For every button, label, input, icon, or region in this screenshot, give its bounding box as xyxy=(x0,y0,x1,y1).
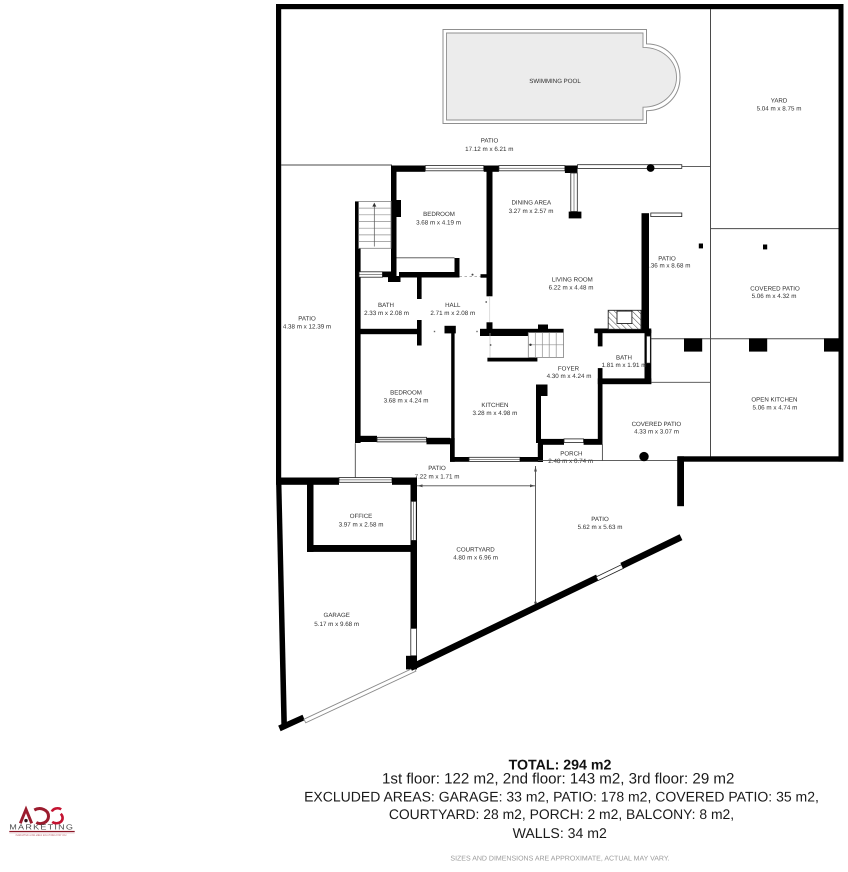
svg-text:WALLS: 34 m2: WALLS: 34 m2 xyxy=(513,825,607,841)
svg-text:FOYER: FOYER xyxy=(558,365,580,372)
svg-text:PORCH: PORCH xyxy=(560,450,582,457)
svg-text:COVERED PATIO: COVERED PATIO xyxy=(632,421,682,428)
svg-text:5.06 m x 4.74 m: 5.06 m x 4.74 m xyxy=(752,405,797,412)
svg-text:SIZES AND DIMENSIONS ARE APPRO: SIZES AND DIMENSIONS ARE APPROXIMATE, AC… xyxy=(450,855,669,862)
svg-text:COVERED PATIO: COVERED PATIO xyxy=(750,285,800,292)
svg-text:2.71 m x 2.08 m: 2.71 m x 2.08 m xyxy=(430,310,475,317)
svg-text:5.17 m x 9.68 m: 5.17 m x 9.68 m xyxy=(314,621,359,628)
svg-text:4.80 m x 6.96 m: 4.80 m x 6.96 m xyxy=(453,555,498,562)
svg-text:PATIO: PATIO xyxy=(298,316,316,323)
svg-text:BEDROOM: BEDROOM xyxy=(390,389,422,396)
svg-text:HALL: HALL xyxy=(445,302,461,309)
svg-text:OFFICE: OFFICE xyxy=(350,513,373,520)
svg-text:17.12 m x 6.21 m: 17.12 m x 6.21 m xyxy=(465,146,513,153)
svg-text:COURTYARD: 28 m2, PORCH: 2 m2,: COURTYARD: 28 m2, PORCH: 2 m2, BALCONY: … xyxy=(389,806,734,822)
svg-text:5.06 m x 4.32 m: 5.06 m x 4.32 m xyxy=(752,293,797,300)
svg-text:3.68 m x 4.19 m: 3.68 m x 4.19 m xyxy=(416,220,461,227)
svg-text:PATIO: PATIO xyxy=(481,138,499,145)
svg-text:EXCLUDED AREAS: GARAGE: 33 m2,: EXCLUDED AREAS: GARAGE: 33 m2, PATIO: 17… xyxy=(304,789,819,805)
svg-text:BEDROOM: BEDROOM xyxy=(423,211,455,218)
svg-text:4.38 m x 12.39 m: 4.38 m x 12.39 m xyxy=(283,324,331,331)
svg-text:LIVING ROOM: LIVING ROOM xyxy=(552,276,593,283)
svg-text:1.81 m x 1.91 m: 1.81 m x 1.91 m xyxy=(602,362,647,369)
svg-text:GARAGE: GARAGE xyxy=(324,612,350,619)
svg-text:4.30 m x 4.24 m: 4.30 m x 4.24 m xyxy=(547,373,592,380)
svg-text:KITCHEN: KITCHEN xyxy=(481,402,508,409)
svg-text:COURTYARD: COURTYARD xyxy=(456,546,495,553)
svg-text:6.22 m x 4.48 m: 6.22 m x 4.48 m xyxy=(549,284,594,291)
svg-text:PATIO: PATIO xyxy=(428,465,446,472)
svg-text:2.33 m x 2.08 m: 2.33 m x 2.08 m xyxy=(364,310,409,317)
svg-text:5.62 m x 5.63 m: 5.62 m x 5.63 m xyxy=(578,524,623,531)
svg-text:3.68 m x 4.24 m: 3.68 m x 4.24 m xyxy=(384,398,429,405)
svg-text:YARD: YARD xyxy=(771,98,788,105)
svg-text:5.36 m x 8.68 m: 5.36 m x 8.68 m xyxy=(646,262,691,269)
svg-text:BATH: BATH xyxy=(616,354,632,361)
svg-text:3.28 m x 4.98 m: 3.28 m x 4.98 m xyxy=(472,410,517,417)
svg-text:3.97 m x 2.58 m: 3.97 m x 2.58 m xyxy=(339,521,384,528)
svg-text:PATIO: PATIO xyxy=(591,516,609,523)
svg-text:3.27 m x 2.57 m: 3.27 m x 2.57 m xyxy=(509,208,554,215)
svg-text:SWIMMING POOL: SWIMMING POOL xyxy=(529,78,581,85)
svg-text:DINING AREA: DINING AREA xyxy=(512,199,552,206)
svg-text:1st floor: 122 m2, 2nd floor:: 1st floor: 122 m2, 2nd floor: 143 m2, 3r… xyxy=(382,771,734,788)
svg-text:MARKETING: MARKETING xyxy=(9,822,74,831)
svg-text:BATH: BATH xyxy=(378,302,394,309)
svg-text:7.22 m x 1.71 m: 7.22 m x 1.71 m xyxy=(415,473,460,480)
svg-text:2.48 m x 0.74 m: 2.48 m x 0.74 m xyxy=(548,458,593,465)
svg-text:INNOVATIVE & RELIABLE SOLUTION: INNOVATIVE & RELIABLE SOLUTIONS FOR YOU xyxy=(16,834,67,837)
svg-text:OPEN KITCHEN: OPEN KITCHEN xyxy=(751,397,797,404)
svg-text:4.33 m x 3.07 m: 4.33 m x 3.07 m xyxy=(634,429,679,436)
svg-text:5.04 m x 8.75 m: 5.04 m x 8.75 m xyxy=(757,106,802,113)
